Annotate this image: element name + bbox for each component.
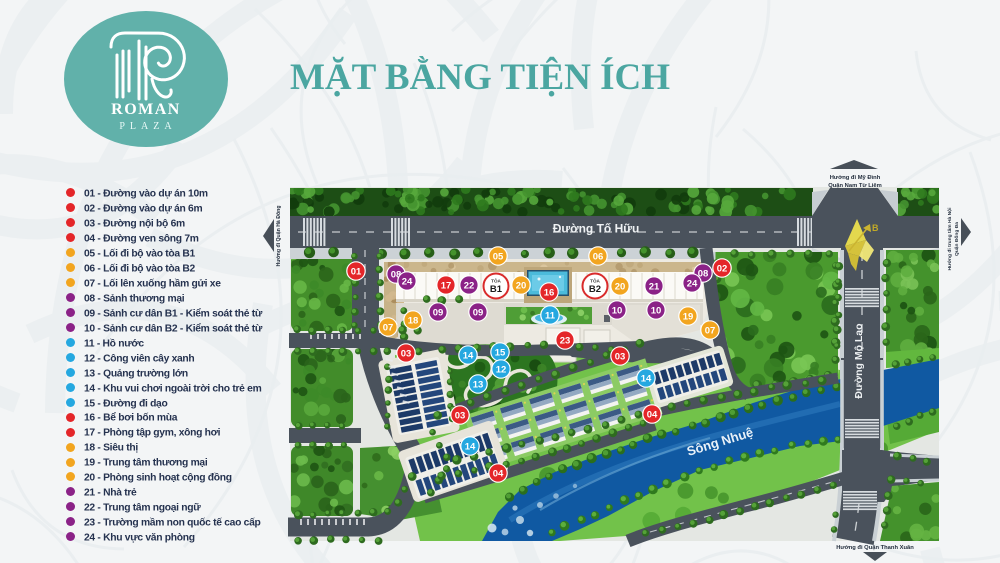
svg-text:14: 14 bbox=[641, 373, 652, 384]
svg-text:B: B bbox=[872, 223, 879, 233]
svg-text:Đường Mộ Lao: Đường Mộ Lao bbox=[853, 323, 865, 398]
svg-text:06: 06 bbox=[593, 251, 604, 262]
svg-text:07: 07 bbox=[705, 325, 716, 336]
svg-text:B1: B1 bbox=[490, 284, 503, 295]
svg-text:17: 17 bbox=[441, 280, 452, 291]
svg-text:24: 24 bbox=[402, 276, 413, 287]
svg-text:12: 12 bbox=[496, 364, 507, 375]
svg-text:10: 10 bbox=[612, 305, 623, 316]
svg-text:03: 03 bbox=[401, 348, 412, 359]
svg-text:ROMAN: ROMAN bbox=[111, 101, 181, 118]
svg-text:10: 10 bbox=[651, 305, 662, 316]
svg-text:Hướng đi Quận Hà Đông: Hướng đi Quận Hà Đông bbox=[276, 205, 282, 266]
svg-text:22: 22 bbox=[464, 280, 475, 291]
svg-text:04: 04 bbox=[647, 409, 658, 420]
svg-text:03: 03 bbox=[455, 410, 466, 421]
svg-text:20: 20 bbox=[615, 281, 626, 292]
svg-text:Hướng đi Quận Thanh Xuân: Hướng đi Quận Thanh Xuân bbox=[836, 545, 914, 551]
svg-text:15: 15 bbox=[495, 347, 506, 358]
svg-text:05: 05 bbox=[493, 251, 504, 262]
svg-text:14: 14 bbox=[463, 350, 474, 361]
svg-text:16: 16 bbox=[544, 287, 555, 298]
svg-text:Quận Đống Đa: Quận Đống Đa bbox=[953, 222, 960, 256]
svg-text:TÒA: TÒA bbox=[590, 277, 600, 284]
svg-text:24: 24 bbox=[687, 278, 698, 289]
svg-text:Đường Tố Hữu: Đường Tố Hữu bbox=[553, 222, 640, 236]
svg-text:Hướng đi trung tâm Hà Nội: Hướng đi trung tâm Hà Nội bbox=[947, 207, 953, 271]
svg-text:07: 07 bbox=[383, 322, 394, 333]
svg-text:09: 09 bbox=[473, 307, 484, 318]
svg-text:09: 09 bbox=[433, 307, 444, 318]
svg-text:18: 18 bbox=[408, 315, 419, 326]
svg-text:Quận Nam Từ Liêm: Quận Nam Từ Liêm bbox=[828, 183, 881, 189]
svg-text:13: 13 bbox=[473, 379, 484, 390]
svg-text:01: 01 bbox=[351, 266, 362, 277]
svg-text:23: 23 bbox=[560, 335, 571, 346]
svg-text:03: 03 bbox=[615, 351, 626, 362]
svg-text:B2: B2 bbox=[589, 284, 601, 295]
svg-text:21: 21 bbox=[649, 281, 660, 292]
svg-text:19: 19 bbox=[683, 311, 694, 322]
svg-text:04: 04 bbox=[493, 468, 504, 479]
svg-text:TÒA: TÒA bbox=[491, 277, 501, 284]
svg-text:Hướng đi Mỹ Đình: Hướng đi Mỹ Đình bbox=[830, 175, 881, 181]
svg-text:PLAZA: PLAZA bbox=[119, 121, 176, 132]
svg-text:11: 11 bbox=[545, 310, 556, 321]
svg-text:20: 20 bbox=[516, 280, 527, 291]
svg-text:02: 02 bbox=[717, 263, 728, 274]
svg-text:14: 14 bbox=[465, 441, 476, 452]
